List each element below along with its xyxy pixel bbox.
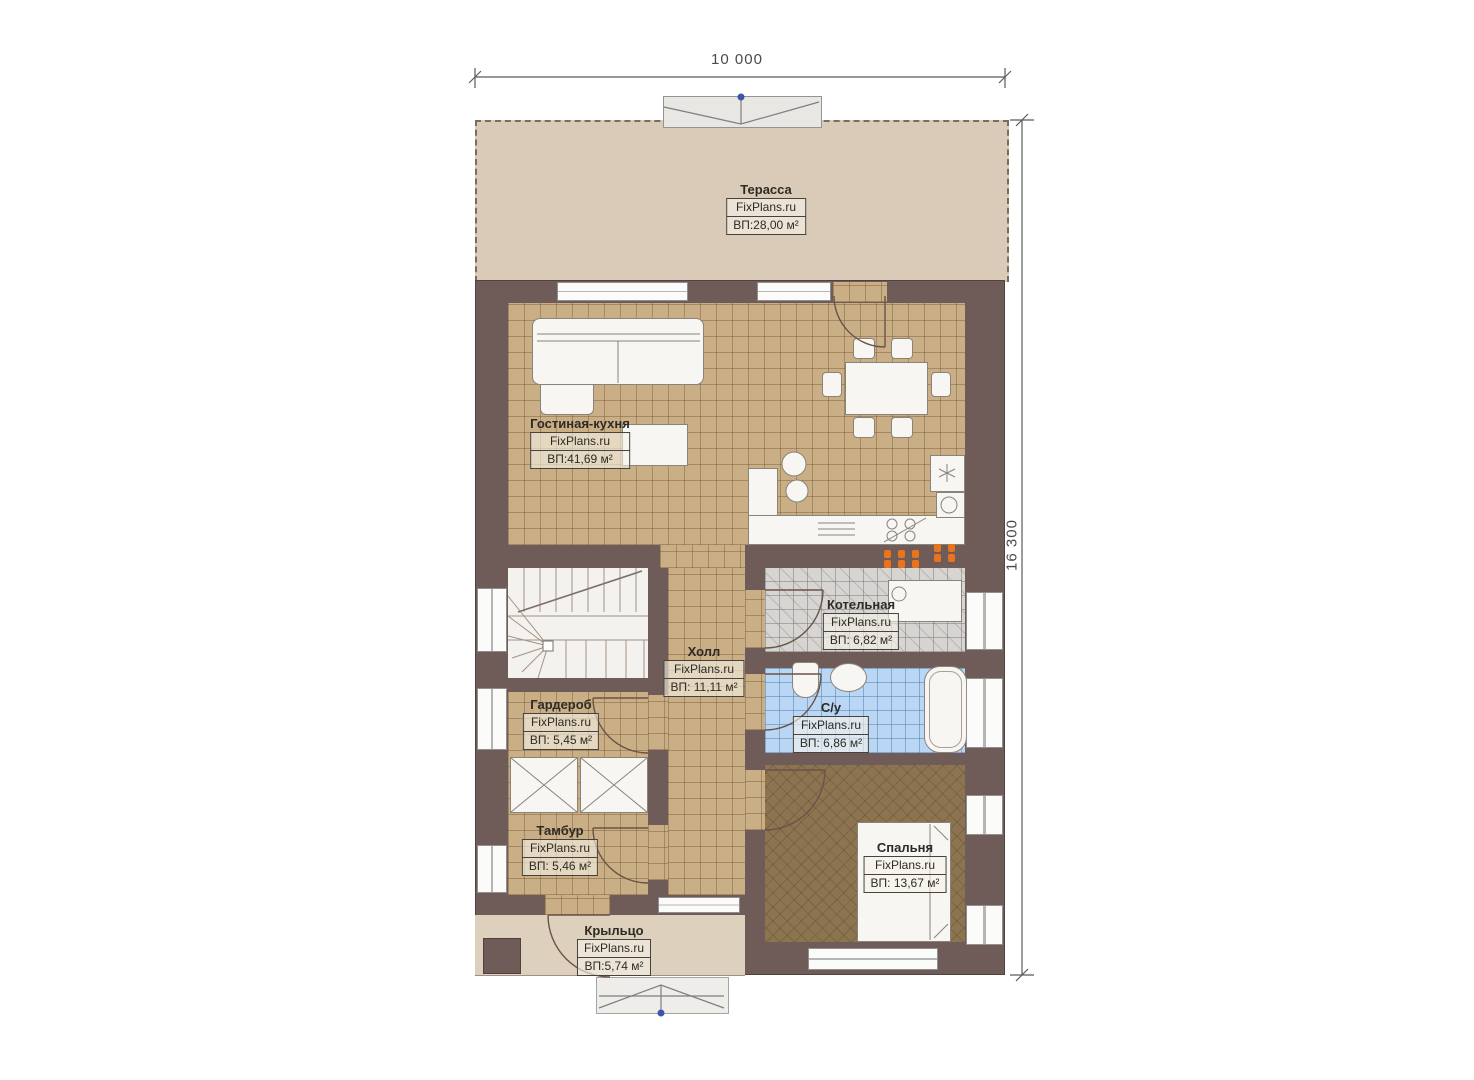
entry-door-opening (545, 895, 610, 915)
window-living-top (557, 282, 688, 301)
porch-column (483, 938, 521, 974)
dining-chair (891, 338, 913, 359)
bedroom-door-opening (745, 770, 765, 830)
sofa (532, 318, 704, 385)
sofa-chaise (540, 384, 594, 415)
dining-chair (891, 417, 913, 438)
room-area: ВП:5,74 м² (577, 958, 651, 976)
room-brand: FixPlans.ru (522, 839, 598, 858)
room-brand: FixPlans.ru (663, 660, 744, 679)
coffee-table (622, 424, 688, 466)
room-label-bedroom: Спальня FixPlans.ru ВП: 13,67 м² (864, 840, 947, 893)
wardrobe-closet (510, 757, 578, 813)
window-boiler-right (966, 592, 1003, 650)
dining-chair (853, 417, 875, 438)
terrace-steps (663, 96, 822, 128)
room-brand: FixPlans.ru (577, 939, 651, 958)
room-brand: FixPlans.ru (793, 716, 869, 735)
bathtub (924, 666, 967, 753)
window-bedroom-right-1 (966, 795, 1003, 835)
terrace-door-opening (833, 282, 887, 302)
room-area: ВП:28,00 м² (726, 217, 806, 235)
staircase-area (508, 568, 648, 678)
room-area: ВП:41,69 м² (530, 451, 630, 469)
window-bedroom-bottom (808, 948, 938, 970)
hall-floor (668, 568, 745, 895)
window-tambour-left (477, 845, 507, 893)
room-name: Котельная (823, 597, 899, 612)
dimension-width-label: 10 000 (711, 51, 763, 68)
fridge (930, 455, 965, 492)
room-area: ВП: 13,67 м² (864, 875, 947, 893)
dimension-height-label: 16 300 (1004, 519, 1021, 571)
room-name: Холл (663, 644, 744, 659)
bathroom-door-opening (745, 674, 765, 730)
room-brand: FixPlans.ru (530, 432, 630, 451)
tambour-door-opening (648, 825, 668, 880)
room-label-tambour: Тамбур FixPlans.ru ВП: 5,46 м² (522, 823, 598, 876)
room-area: ВП: 11,11 м² (663, 679, 744, 697)
room-area: ВП: 6,86 м² (793, 735, 869, 753)
bathtub-inner (929, 671, 962, 748)
kitchen-sink-unit (936, 492, 965, 518)
room-name: Гардероб (523, 697, 599, 712)
dining-chair (931, 372, 951, 397)
room-area: ВП: 6,82 м² (823, 632, 899, 650)
room-label-hall: Холл FixPlans.ru ВП: 11,11 м² (663, 644, 744, 697)
window-wardrobe-left (477, 688, 507, 750)
floor-plan-canvas: 10 000 16 300 (0, 0, 1474, 1080)
dining-chair (853, 338, 875, 359)
room-label-living: Гостиная-кухня FixPlans.ru ВП:41,69 м² (530, 416, 630, 469)
room-brand: FixPlans.ru (523, 713, 599, 732)
boiler-door-opening (745, 590, 765, 648)
room-name: Терасса (726, 182, 806, 197)
room-name: С/у (793, 700, 869, 715)
window-bathroom-right (966, 678, 1003, 748)
living-hall-opening (660, 545, 745, 568)
room-area: ВП: 5,46 м² (522, 858, 598, 876)
room-label-wardrobe: Гардероб FixPlans.ru ВП: 5,45 м² (523, 697, 599, 750)
toilet (792, 662, 819, 698)
room-brand: FixPlans.ru (864, 856, 947, 875)
room-label-bathroom: С/у FixPlans.ru ВП: 6,86 м² (793, 700, 869, 753)
window-kitchen-top (757, 282, 831, 301)
window-hall-porch (658, 897, 740, 913)
dining-chair (822, 372, 842, 397)
room-label-terrace: Терасса FixPlans.ru ВП:28,00 м² (726, 182, 806, 235)
porch-steps (596, 977, 729, 1014)
dining-table (845, 362, 928, 415)
wardrobe-door-opening (648, 695, 668, 750)
wardrobe-closet (580, 757, 648, 813)
room-brand: FixPlans.ru (726, 198, 806, 217)
room-label-boiler: Котельная FixPlans.ru ВП: 6,82 м² (823, 597, 899, 650)
kitchen-counter-bottom (748, 515, 965, 545)
room-label-porch: Крыльцо FixPlans.ru ВП:5,74 м² (577, 923, 651, 976)
room-brand: FixPlans.ru (823, 613, 899, 632)
bathroom-sink (830, 663, 867, 692)
window-bedroom-right-2 (966, 905, 1003, 945)
room-name: Тамбур (522, 823, 598, 838)
room-area: ВП: 5,45 м² (523, 732, 599, 750)
room-name: Крыльцо (577, 923, 651, 938)
room-name: Спальня (864, 840, 947, 855)
window-stairs-left (477, 588, 507, 652)
room-name: Гостиная-кухня (530, 416, 630, 431)
